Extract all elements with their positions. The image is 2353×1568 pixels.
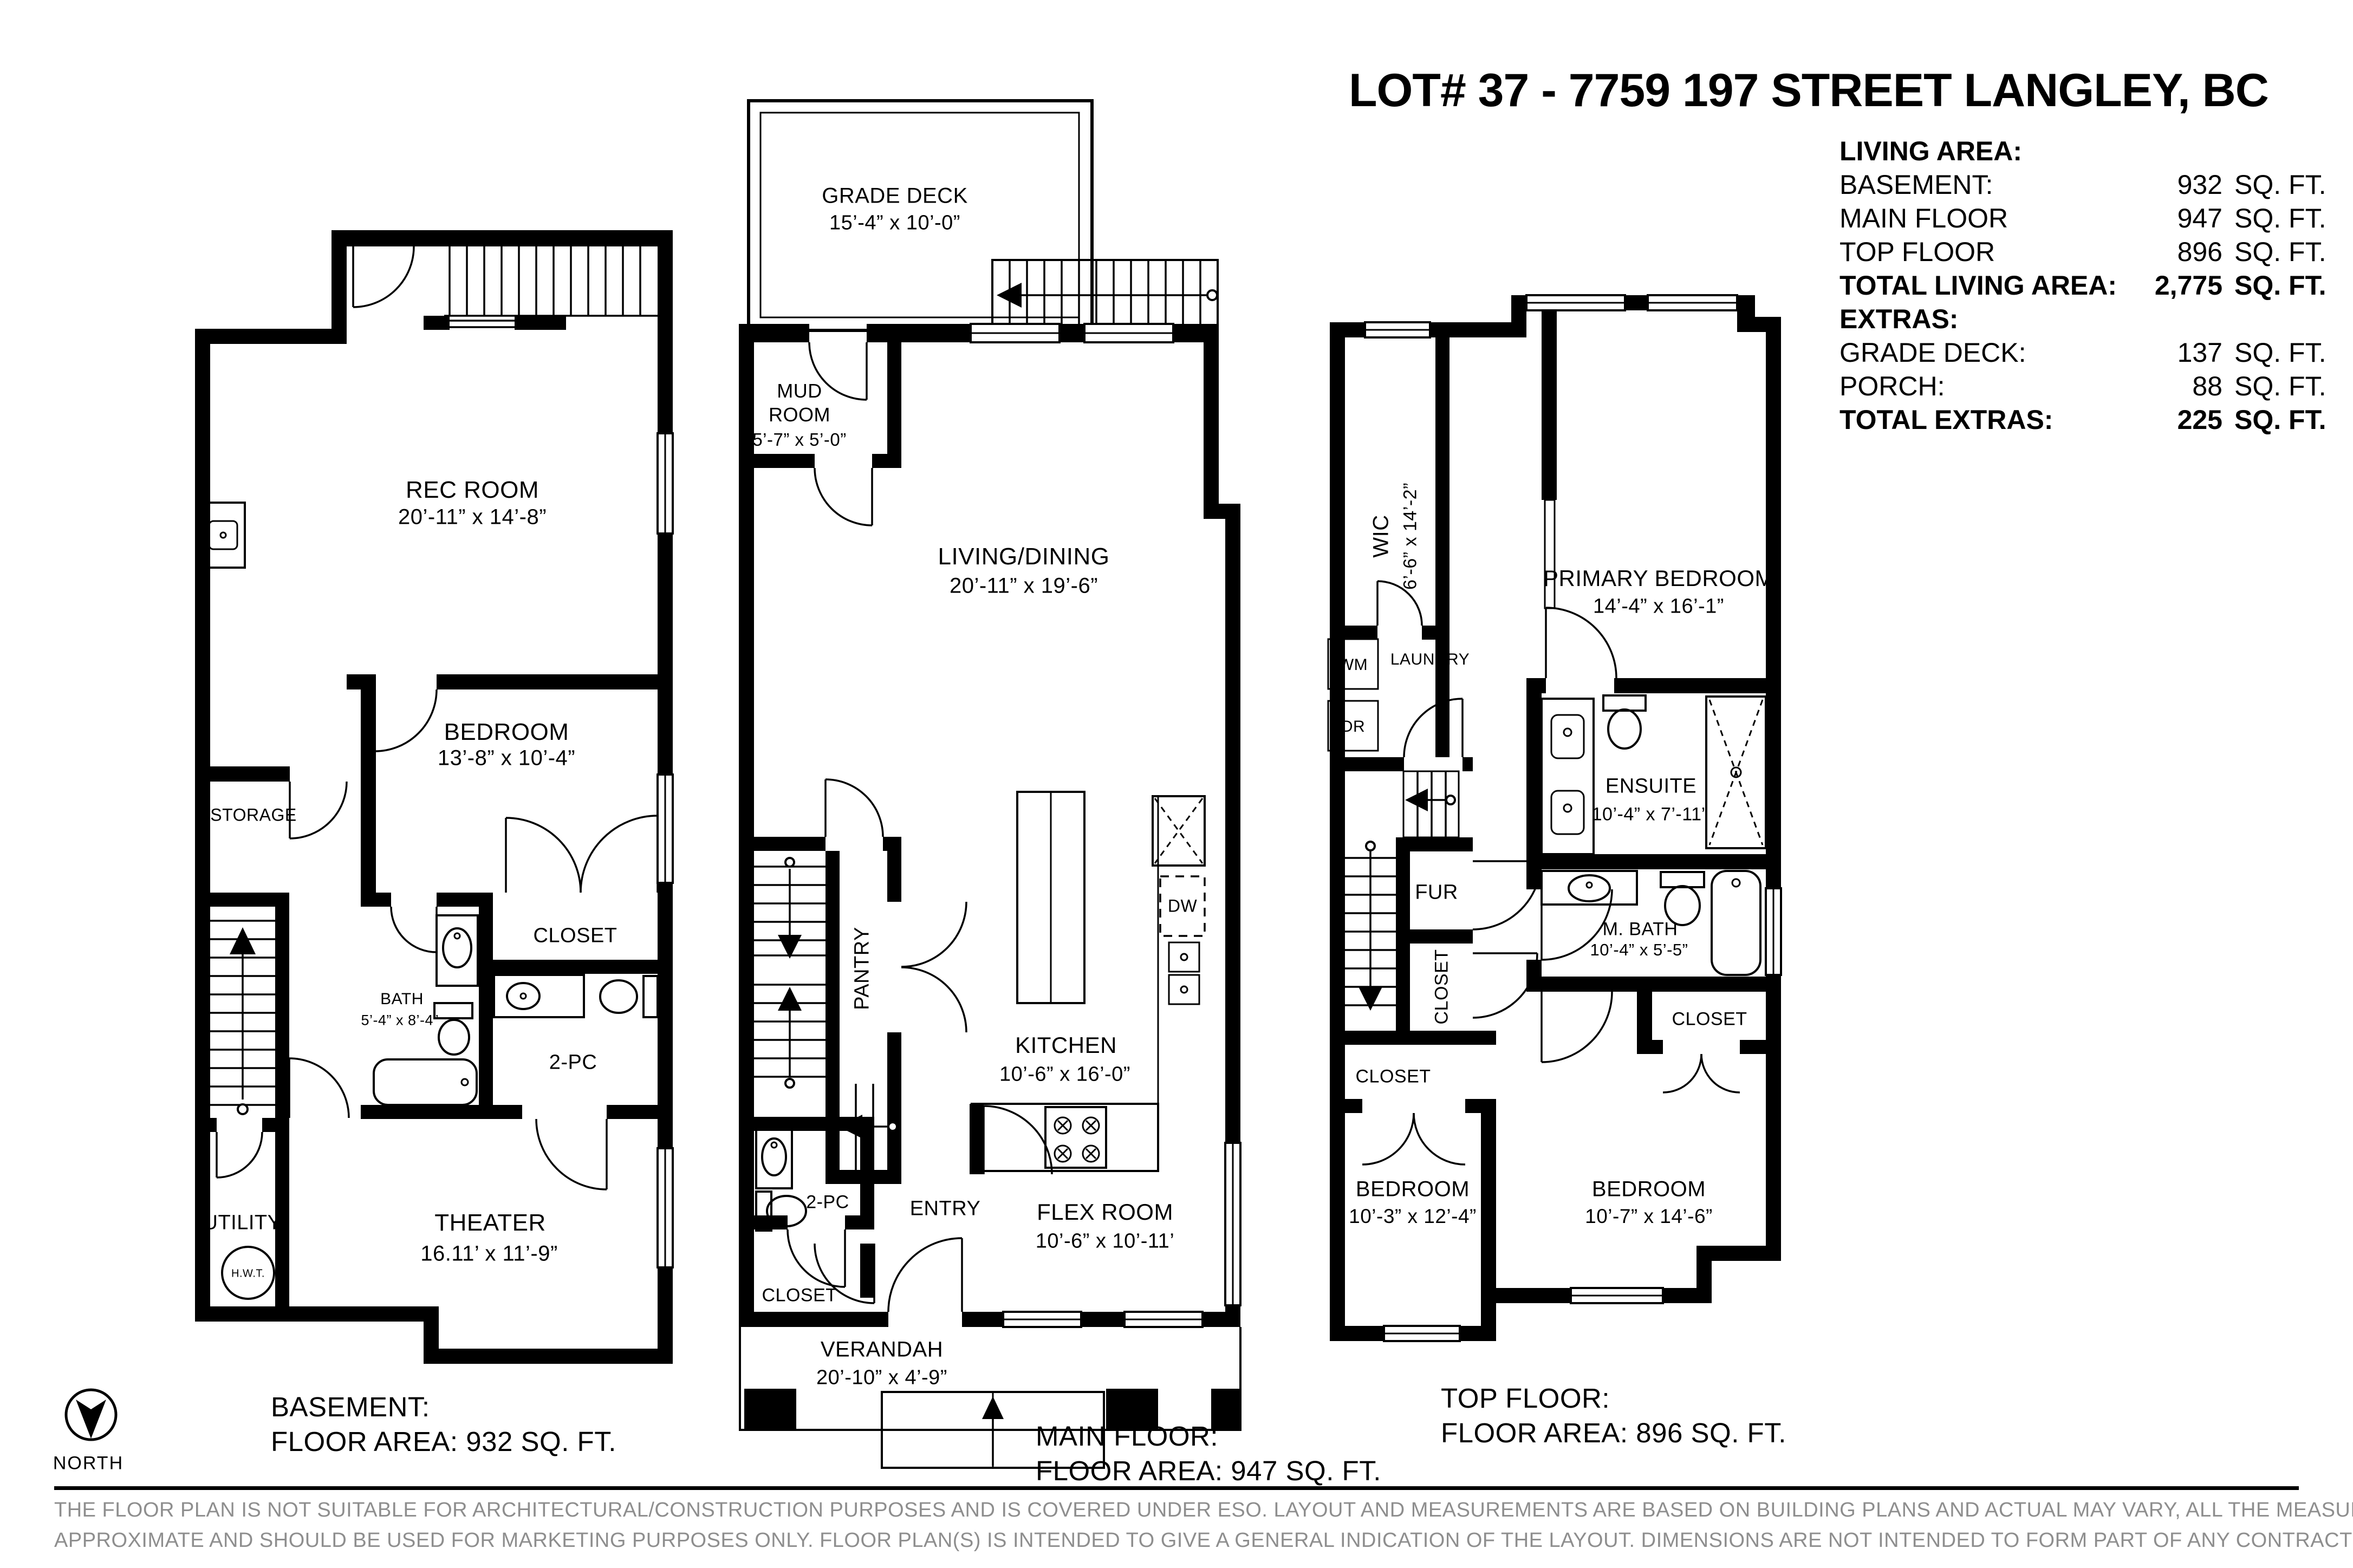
room-dims-verandah: 20’-10” x 4’-9” <box>816 1367 947 1390</box>
washer-label: WM <box>1338 656 1368 674</box>
dw-label: DW <box>1168 896 1197 916</box>
powder-room-fixtures <box>756 1125 806 1231</box>
table-row-basement: BASEMENT:932SQ. FT. <box>1839 168 2333 201</box>
table-row-main-floor: MAIN FLOOR947SQ. FT. <box>1839 201 2333 235</box>
room-dims-bath: 5’-4” x 8’-4” <box>361 1012 438 1029</box>
room-label-bath: BATH <box>380 990 424 1009</box>
room-label-ensuite: ENSUITE <box>1605 775 1696 798</box>
room-label-laundry: LAUNDRY <box>1390 650 1470 669</box>
room-dims-kitchen: 10’-6” x 16’-0” <box>999 1063 1130 1086</box>
north-arrow-icon <box>54 1378 130 1454</box>
table-heading: LIVING AREA: <box>1839 134 2333 168</box>
room-dims-primary-bedroom: 14’-4” x 16’-1” <box>1593 595 1724 619</box>
table-row-total-extras: TOTAL EXTRAS:225SQ. FT. <box>1839 403 2333 437</box>
room-label-utility: UTILITY <box>203 1212 282 1235</box>
top-floor-caption: TOP FLOOR: FLOOR AREA: 896 SQ. FT. <box>1441 1381 1786 1450</box>
table-row-porch: PORCH:88SQ. FT. <box>1839 369 2333 403</box>
room-label-mud-2: ROOM <box>769 404 830 426</box>
room-dims-bedroom: 13’-8” x 10’-4” <box>438 746 575 771</box>
room-dims-wic: 6’-6” x 14’-2” <box>1400 483 1421 590</box>
room-label-storage: STORAGE <box>210 805 296 825</box>
room-dims-ensuite: 10’-4” x 7’-11” <box>1592 804 1708 825</box>
deck-stairs <box>992 260 1218 330</box>
room-label-bedroom-left: BEDROOM <box>1356 1177 1470 1202</box>
room-label-flex-room: FLEX ROOM <box>1037 1199 1173 1225</box>
room-dims-grade-deck: 15’-4” x 10’-0” <box>829 212 960 235</box>
room-label-mbath: M. BATH <box>1603 919 1678 940</box>
toilet-icon <box>643 976 658 1017</box>
table-row-top-floor: TOP FLOOR896SQ. FT. <box>1839 235 2333 269</box>
room-label-living-dining: LIVING/DINING <box>938 543 1110 570</box>
room-dims-living-dining: 20’-11” x 19’-6” <box>950 574 1098 598</box>
room-label-closet-right: CLOSET <box>1672 1009 1747 1030</box>
toilet-icon <box>434 1003 472 1018</box>
room-label-2pc: 2-PC <box>549 1051 597 1075</box>
table-row-total-living: TOTAL LIVING AREA:2,775SQ. FT. <box>1839 269 2333 302</box>
toilet-icon <box>1661 872 1704 887</box>
basement-caption: BASEMENT: FLOOR AREA: 932 SQ. FT. <box>271 1390 616 1459</box>
disclaimer: THE FLOOR PLAN IS NOT SUITABLE FOR ARCHI… <box>54 1495 2324 1556</box>
room-label-2pc-main: 2-PC <box>806 1192 849 1213</box>
living-area-table: LIVING AREA: BASEMENT:932SQ. FT. MAIN FL… <box>1839 134 2333 437</box>
disclaimer-line-1: THE FLOOR PLAN IS NOT SUITABLE FOR ARCHI… <box>54 1495 2324 1525</box>
table-row-extras: EXTRAS: <box>1839 302 2333 336</box>
page-title: LOT# 37 - 7759 197 STREET LANGLEY, BC <box>1349 64 2268 118</box>
room-dims-bedroom-left: 10’-3” x 12’-4” <box>1349 1205 1477 1228</box>
room-label-mud: MUD <box>777 380 822 402</box>
room-label-closet-left: CLOSET <box>1355 1066 1431 1088</box>
kitchen-fixtures <box>972 792 1205 1171</box>
north-label: NORTH <box>53 1453 123 1474</box>
main-windows <box>971 324 1240 1327</box>
toilet-icon <box>1603 695 1646 711</box>
sink-icon <box>1169 942 1199 972</box>
room-label-rec-room: REC ROOM <box>406 477 539 504</box>
table-row-grade-deck: GRADE DECK:137SQ. FT. <box>1839 336 2333 369</box>
room-dims-mud: 5’-7” x 5’-0” <box>752 430 846 450</box>
room-label-bedroom: BEDROOM <box>444 719 569 746</box>
room-dims-bedroom-right: 10’-7” x 14’-6” <box>1585 1205 1713 1228</box>
sink-icon <box>1169 975 1199 1004</box>
room-label-closet-main: CLOSET <box>762 1285 837 1306</box>
room-label-kitchen: KITCHEN <box>1015 1032 1117 1058</box>
divider-line <box>54 1486 2299 1490</box>
basement-walls <box>195 230 673 1364</box>
floor-plan-sheet: LOT# 37 - 7759 197 STREET LANGLEY, BC LI… <box>0 0 2353 1568</box>
room-label-theater: THEATER <box>434 1209 546 1237</box>
room-label-fur: FUR <box>1415 881 1458 905</box>
room-dims-theater: 16.11’ x 11’-9” <box>420 1242 558 1266</box>
room-label-verandah: VERANDAH <box>821 1338 943 1362</box>
room-label-closet-mid: CLOSET <box>1432 949 1453 1024</box>
main-floor-caption: MAIN FLOOR: FLOOR AREA: 947 SQ. FT. <box>1036 1419 1381 1488</box>
room-label-grade-deck: GRADE DECK <box>822 184 968 209</box>
room-label-wic: WIC <box>1369 515 1394 557</box>
hwt-label: H.W.T. <box>231 1268 265 1280</box>
room-label-entry: ENTRY <box>910 1198 981 1221</box>
room-label-pantry: PANTRY <box>851 927 874 1010</box>
room-label-closet: CLOSET <box>533 925 617 948</box>
room-dims-flex-room: 10’-6” x 10’-11’ <box>1036 1230 1175 1253</box>
room-dims-mbath: 10’-4” x 5’-5” <box>1590 940 1688 960</box>
dryer-label: DR <box>1341 718 1365 736</box>
disclaimer-line-2: APPROXIMATE AND SHOULD BE USED FOR MARKE… <box>54 1525 2324 1556</box>
ensuite-vanity <box>1542 699 1594 854</box>
room-dims-rec-room: 20’-11” x 14’-8” <box>398 505 547 530</box>
room-label-primary-bedroom: PRIMARY BEDROOM <box>1543 565 1774 591</box>
room-label-bedroom-right: BEDROOM <box>1592 1177 1706 1202</box>
